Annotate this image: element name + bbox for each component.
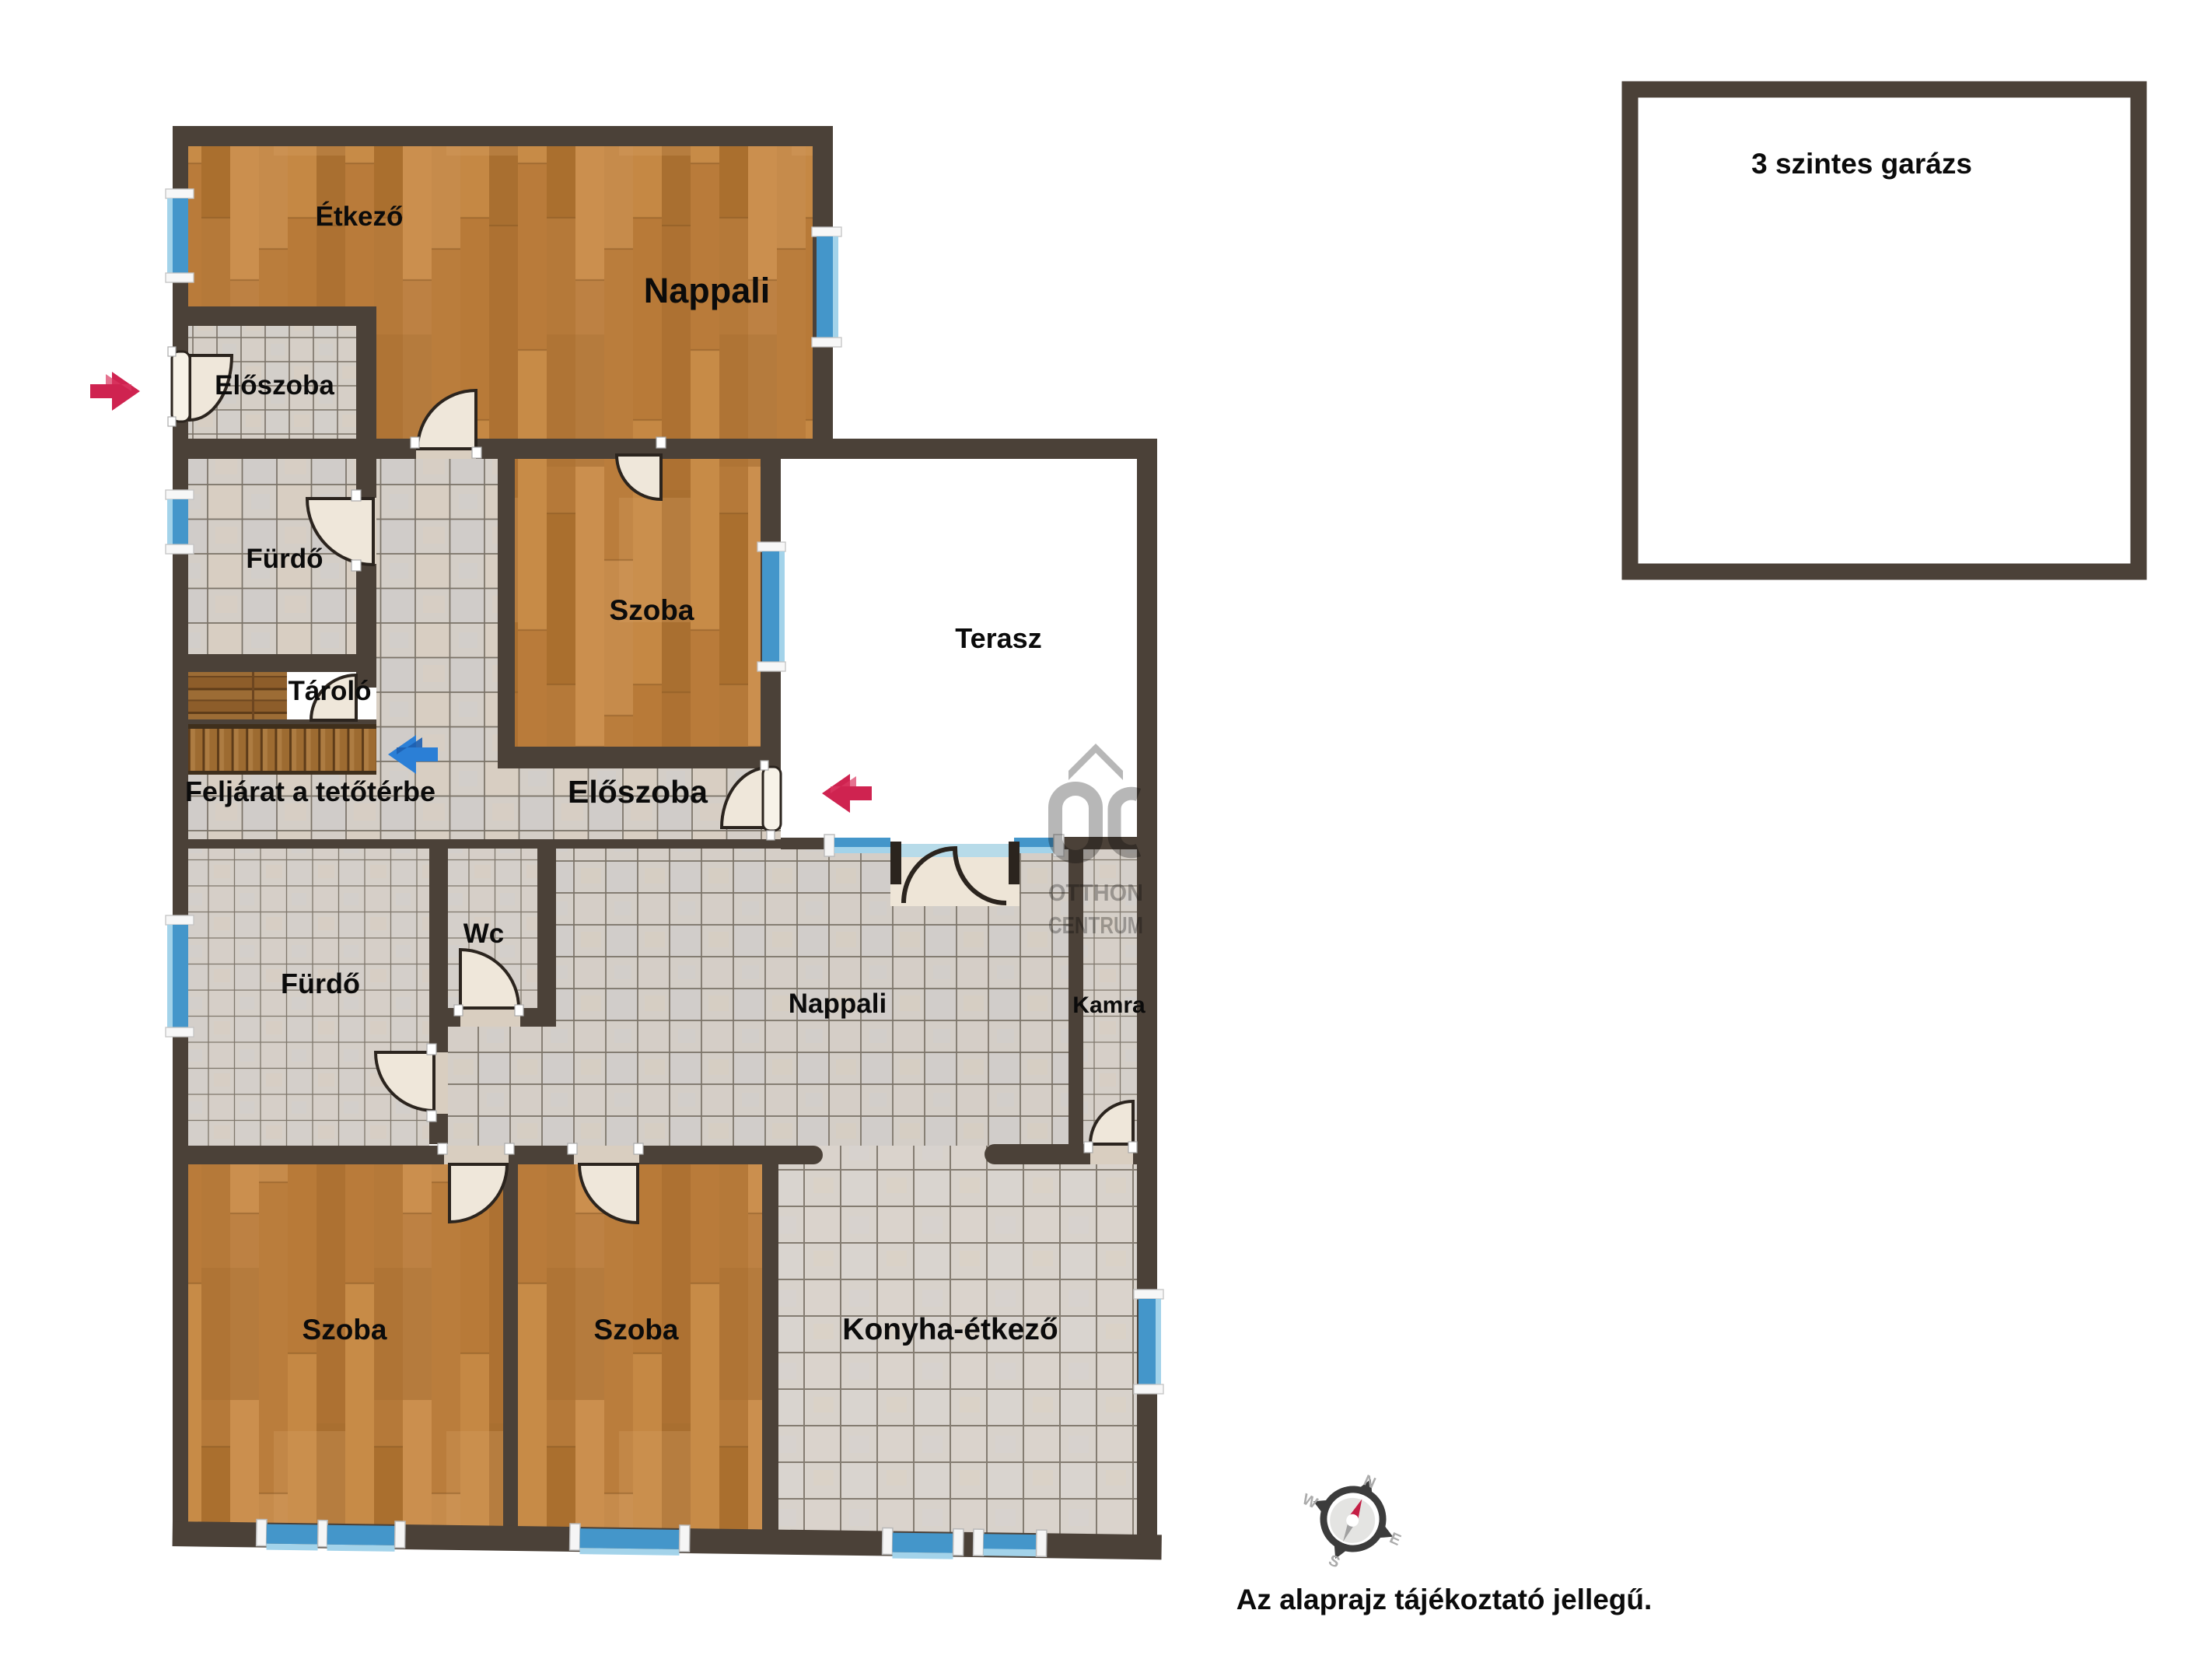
svg-text:Fürdő: Fürdő xyxy=(281,968,360,999)
svg-text:Kamra: Kamra xyxy=(1072,992,1145,1018)
svg-text:CENTRUM: CENTRUM xyxy=(1048,912,1143,939)
svg-text:Konyha-étkező: Konyha-étkező xyxy=(842,1313,1058,1346)
svg-text:Tároló: Tároló xyxy=(289,676,372,706)
svg-text:Az alaprajz tájékoztató jelleg: Az alaprajz tájékoztató jellegű. xyxy=(1236,1584,1653,1615)
svg-text:Nappali: Nappali xyxy=(644,271,771,310)
svg-text:Étkező: Étkező xyxy=(316,201,404,232)
svg-text:3 szintes garázs: 3 szintes garázs xyxy=(1751,148,1972,180)
svg-text:Előszoba: Előszoba xyxy=(568,774,708,810)
svg-text:Szoba: Szoba xyxy=(610,594,694,626)
svg-text:Nappali: Nappali xyxy=(789,989,887,1019)
svg-text:Terasz: Terasz xyxy=(955,622,1041,654)
svg-text:Wc: Wc xyxy=(463,919,505,949)
svg-text:OTTHON: OTTHON xyxy=(1048,879,1143,906)
svg-text:Előszoba: Előszoba xyxy=(215,370,334,401)
svg-text:Feljárat a tetőtérbe: Feljárat a tetőtérbe xyxy=(185,775,435,807)
svg-text:Szoba: Szoba xyxy=(303,1314,387,1346)
svg-text:Szoba: Szoba xyxy=(594,1314,679,1346)
svg-text:Fürdő: Fürdő xyxy=(246,544,323,574)
